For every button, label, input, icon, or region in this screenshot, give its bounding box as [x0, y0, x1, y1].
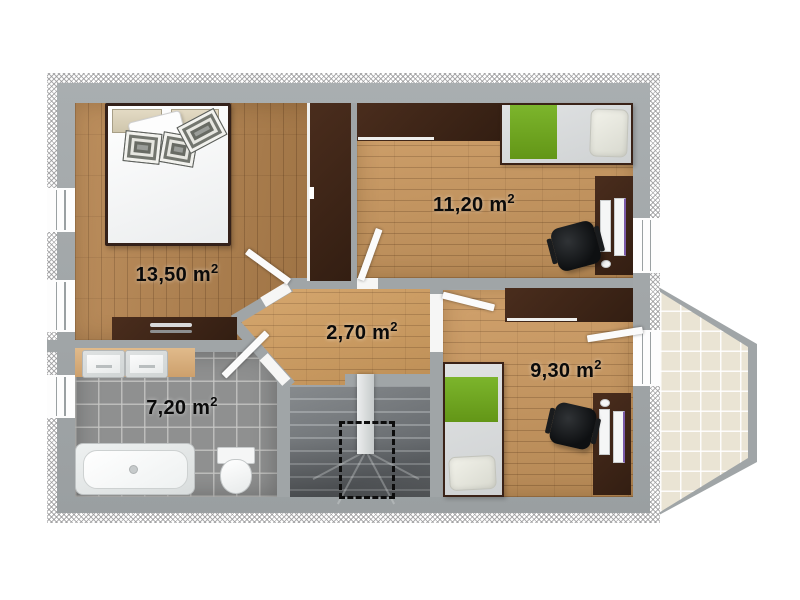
door-opening-room930: [430, 294, 443, 352]
window-left-bedroom-1: [47, 188, 75, 232]
single-bed-room1120: [500, 103, 633, 165]
bed-blanket-green: [510, 105, 557, 159]
sink-left: [82, 350, 125, 378]
desk-room930: [593, 393, 631, 495]
bed-pillow: [448, 455, 497, 491]
area-sup: 2: [211, 261, 219, 276]
balcony-floor: [660, 292, 748, 512]
window-right-room1120: [633, 218, 660, 273]
wardrobe-handle: [309, 187, 314, 199]
wardrobe-slider-line: [507, 318, 577, 321]
area-value: 11,20 m: [433, 194, 507, 216]
wardrobe-room1120: [357, 103, 500, 141]
sideboard-bedroom: [112, 317, 237, 340]
floor-plan: 13,50 m2 11,20 m2 2,70 m2 9,30 m2 7,20 m…: [0, 0, 800, 600]
area-value: 7,20 m: [146, 397, 210, 419]
area-value: 9,30 m: [530, 360, 594, 382]
balcony: [648, 281, 760, 522]
area-sup: 2: [390, 319, 398, 334]
sideboard-detail: [150, 323, 192, 327]
mouse: [600, 399, 610, 407]
wardrobe-room930: [505, 288, 633, 322]
sink-right: [125, 350, 168, 378]
window-left-bathroom: [47, 375, 75, 418]
laptop: [613, 411, 625, 463]
area-sup: 2: [210, 394, 218, 409]
area-value: 13,50 m: [135, 264, 211, 286]
wardrobe-bedroom: [307, 103, 351, 281]
wall-bathroom-east: [277, 382, 290, 497]
stairwell-dashed-outline: [339, 421, 395, 499]
bathtub-drain: [129, 465, 138, 474]
double-bed: [105, 103, 231, 246]
single-bed-room930: [443, 362, 504, 497]
bed-blanket-green: [445, 377, 498, 422]
laptop: [614, 198, 626, 256]
bed-pillow-patterned-1: [122, 130, 162, 165]
sideboard-detail: [150, 330, 192, 333]
balcony-door-opening: [633, 330, 660, 386]
area-value: 2,70 m: [326, 322, 390, 344]
area-label-bathroom: 7,20 m2: [146, 394, 218, 420]
area-sup: 2: [594, 357, 602, 372]
toilet: [217, 447, 253, 493]
area-label-hallway: 2,70 m2: [326, 319, 398, 345]
area-sup: 2: [507, 191, 515, 206]
bathtub: [75, 443, 195, 495]
area-label-room930: 9,30 m2: [530, 357, 602, 383]
wardrobe-slider-line: [358, 137, 434, 140]
desk-room1120: [595, 176, 633, 275]
area-label-room1120: 11,20 m2: [433, 191, 515, 217]
keyboard: [599, 409, 610, 455]
toilet-bowl: [220, 459, 252, 494]
area-label-bedroom: 13,50 m2: [135, 261, 218, 287]
window-left-bedroom-2: [47, 280, 75, 332]
bed-pillow: [589, 108, 629, 157]
mouse: [601, 260, 611, 268]
